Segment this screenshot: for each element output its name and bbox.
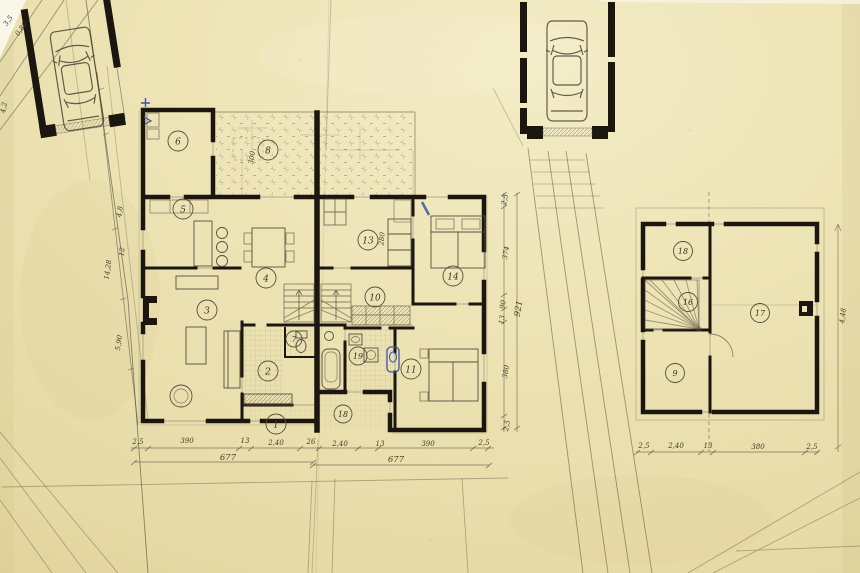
paper-stain (510, 475, 770, 565)
carport-sill (543, 128, 592, 136)
dimension-text: 2,40 (267, 439, 284, 447)
scanned-floor-plan-sheet: 6 8 5 4 3 7 2 1 13 14 10 19 11 18 300 28… (0, 0, 860, 573)
chimney-flue (802, 306, 807, 312)
total-dimension-text: 677 (220, 453, 237, 463)
room-number: 5 (180, 206, 186, 216)
dimension-text: 13 (241, 437, 250, 445)
room-number: 4 (262, 275, 269, 285)
carport-right-wall (608, 62, 615, 132)
carport-left-wall (520, 2, 527, 52)
paper-highlight (260, 15, 600, 95)
room-number: 16 (683, 298, 693, 307)
porch-tiles (318, 393, 389, 429)
room-number: 6 (175, 138, 181, 148)
carport-right-wall (608, 2, 615, 57)
room-number: 11 (405, 366, 416, 376)
carport-corner-block (527, 126, 543, 139)
dimension-text: 26 (306, 438, 316, 446)
room-number: 13 (362, 237, 374, 247)
paper-background (0, 0, 860, 573)
room-number: 18 (338, 410, 348, 419)
dimension-text: 2,5 (805, 443, 818, 451)
dimension-text: 380 (751, 443, 765, 451)
dimension-text: 12 (117, 246, 126, 256)
carport-corner-block (39, 124, 57, 138)
dimension-text: 2,5 (477, 439, 490, 447)
dimension-text: 390 (421, 440, 435, 448)
dimension-text: 2,40 (331, 440, 348, 448)
dimension-text: 2,40 (667, 442, 684, 450)
floor-plan-drawing: 6 8 5 4 3 7 2 1 13 14 10 19 11 18 300 28… (0, 0, 860, 573)
room-number: 8 (265, 147, 271, 157)
entry-tiles (243, 406, 316, 420)
room-number: 9 (672, 369, 677, 378)
carport-left-wall (520, 108, 527, 134)
carport-corner-block (108, 113, 126, 127)
room-number: 19 (353, 352, 363, 361)
dimension-text: 13 (704, 442, 713, 450)
total-dimension-text: 677 (388, 455, 405, 465)
dimension-text: 2,5 (637, 442, 650, 450)
room-number: 2 (264, 368, 271, 378)
dimension-text: 13 (376, 440, 385, 448)
room-number: 14 (447, 273, 459, 283)
paper-edge-right (842, 0, 860, 573)
room-number: 3 (204, 307, 210, 317)
room-number: 1 (273, 421, 279, 431)
room-number: 10 (369, 294, 381, 304)
carport-corner-block (592, 126, 608, 139)
dimension-text: 2,5 (131, 438, 144, 446)
hall-tiles (244, 326, 284, 403)
wall-dimension-text: 280 (377, 231, 386, 247)
dimension-text: 390 (180, 437, 194, 445)
room-number: 17 (755, 309, 766, 318)
room-number: 18 (678, 247, 688, 256)
carport-left-wall (520, 58, 527, 103)
